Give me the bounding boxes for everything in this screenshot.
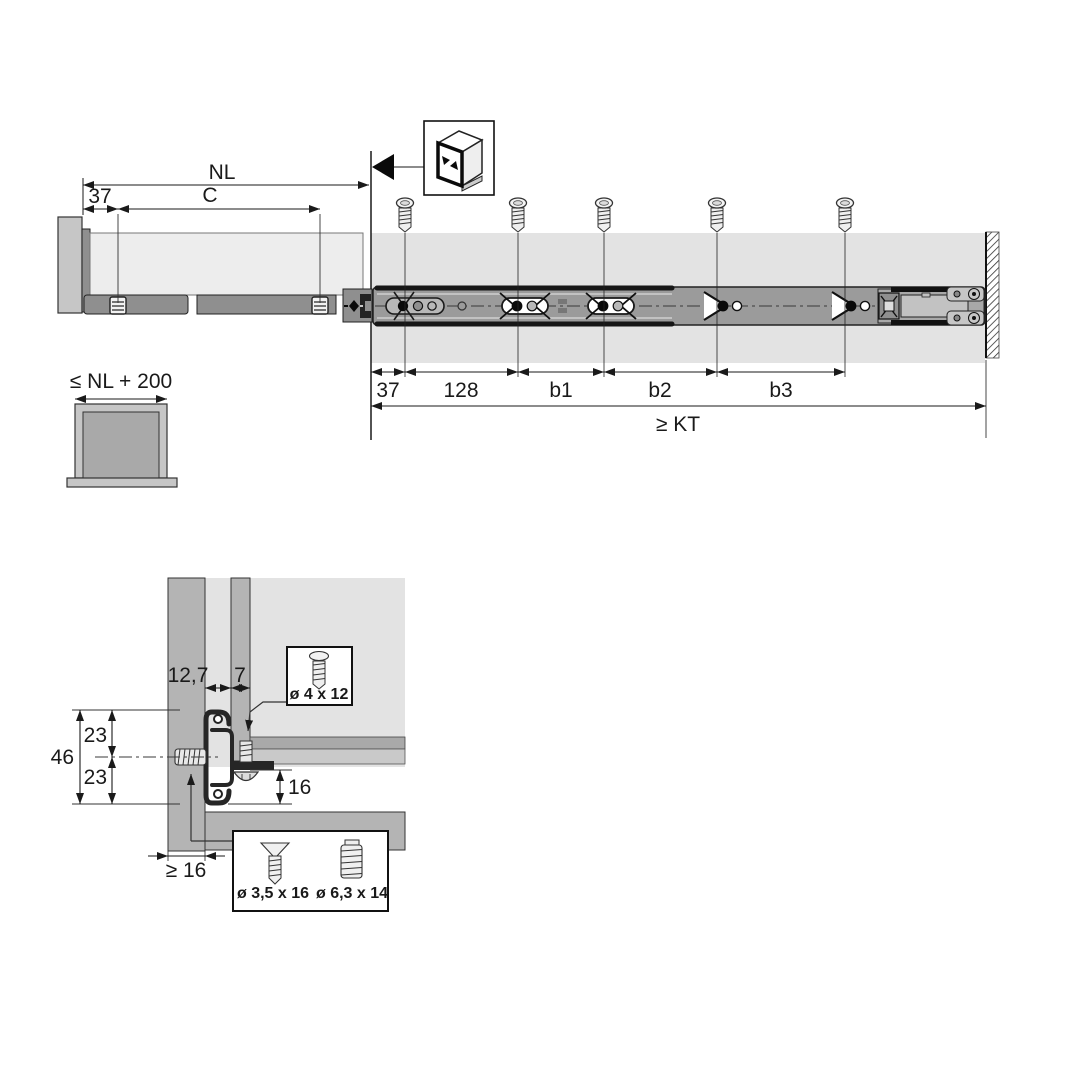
dim-b1: b1 [549,379,572,402]
drawer-bottom-top-layer [250,737,405,749]
drawer-slide-installation-diagram: NL 37 C 37 128 b1 b2 b3 ≥ KT ≤ NL + 200 [0,0,1080,1080]
screw-spacing-dimensions: 37 128 b1 b2 b3 ≥ KT [371,360,986,438]
dim-b3: b3 [769,379,792,402]
dim-46: 46 [51,746,74,769]
technical-drawing-page: NL 37 C 37 128 b1 b2 b3 ≥ KT ≤ NL + 200 [0,0,1080,1080]
dim-min-16: ≥ 16 [166,859,207,882]
screw-6-3x14-icon [341,840,362,878]
cabinet-side-panel-section [168,578,205,851]
soft-close-mechanism [878,287,984,325]
front-view-drawing: ≤ NL + 200 [67,370,177,487]
side-mounting-screw-icon [95,749,218,765]
cabinet-icon-box [424,121,494,195]
rail-coupling [343,289,372,322]
drawer-side-view [58,217,372,322]
dim-c: C [202,184,217,207]
dim-kt: ≥ KT [656,413,700,436]
screw-spec-4x12: ø 4 x 12 [290,686,349,703]
dim-16: 16 [288,776,311,799]
screw-spec-6-3x14: ø 6,3 x 14 [316,885,388,902]
drawer-front-view-inner [83,412,159,478]
rail-detent [558,299,567,304]
dim-nl: NL [209,161,236,184]
dim-23-top: 23 [84,724,107,747]
drawer-front-panel [58,217,82,313]
rail-detent [558,308,567,313]
drawer-base-plate [67,478,177,487]
mounting-direction-arrow-icon [372,154,394,180]
dim-b2: b2 [648,379,671,402]
bottom-clearance-dimension: 16 [280,770,311,804]
dim-12-7: 12,7 [168,664,209,687]
dim-nl-plus-200: ≤ NL + 200 [70,370,172,393]
dim-37: 37 [376,379,399,402]
panel-thickness-dimension: ≥ 16 [148,851,225,882]
dim-128: 128 [443,379,478,402]
dim-23-bottom: 23 [84,766,107,789]
drawer-rail-segment [84,295,188,314]
rail-hole [458,302,466,310]
drawer-body [90,233,363,295]
section-view-drawing: 46 23 23 12,7 7 16 ≥ 16 [51,578,405,911]
screw-spec-3-5x16: ø 3,5 x 16 [237,885,309,902]
dim-7: 7 [234,664,246,687]
dim-37-front: 37 [88,185,111,208]
back-wall-hatch [986,232,999,358]
top-view-drawing: NL 37 C 37 128 b1 b2 b3 ≥ KT [58,121,999,440]
